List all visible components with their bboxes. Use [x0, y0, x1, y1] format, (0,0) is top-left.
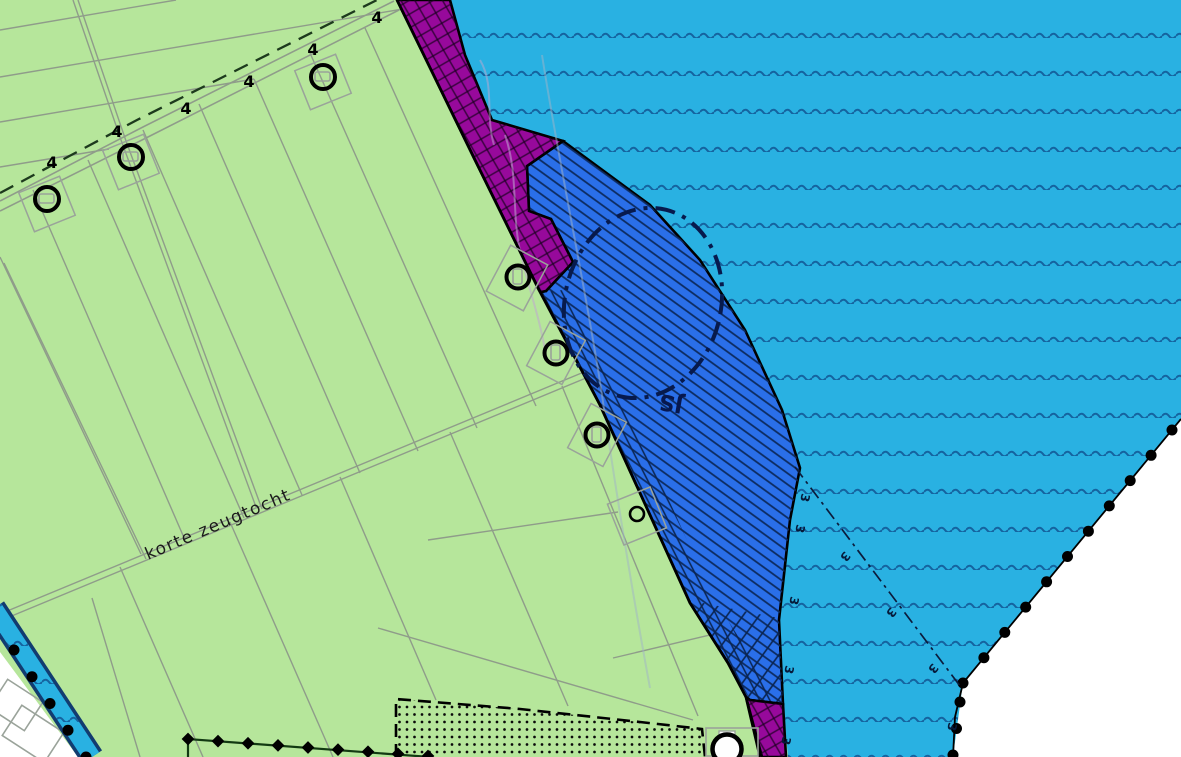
boundary-dot: [999, 627, 1010, 638]
boundary-dot: [1083, 526, 1094, 537]
zoning-map-canvas[interactable]: JS 3 3 3 3 3 3 3 3 3: [0, 0, 1181, 757]
boundary-dot: [63, 725, 74, 736]
svg-text:4: 4: [307, 40, 318, 59]
svg-text:4: 4: [180, 99, 191, 118]
boundary-dot: [978, 652, 989, 663]
boundary-dot: [1062, 551, 1073, 562]
boundary-dot: [1146, 450, 1157, 461]
svg-text:4: 4: [243, 72, 254, 91]
svg-text:4: 4: [111, 122, 122, 141]
svg-text:4: 4: [371, 8, 382, 27]
boundary-dot: [1125, 475, 1136, 486]
boundary-dot: [955, 697, 966, 708]
building-circle-symbol-large: [713, 735, 742, 757]
boundary-dot: [9, 645, 20, 656]
boundary-dot: [1020, 602, 1031, 613]
map-svg: JS 3 3 3 3 3 3 3 3 3: [0, 0, 1181, 757]
svg-text:4: 4: [46, 153, 57, 172]
boundary-dot: [27, 671, 38, 682]
boundary-dot: [1167, 425, 1178, 436]
boundary-dot: [1041, 576, 1052, 587]
boundary-dot: [45, 698, 56, 709]
boundary-dot: [958, 678, 969, 689]
boundary-dot: [1104, 500, 1115, 511]
